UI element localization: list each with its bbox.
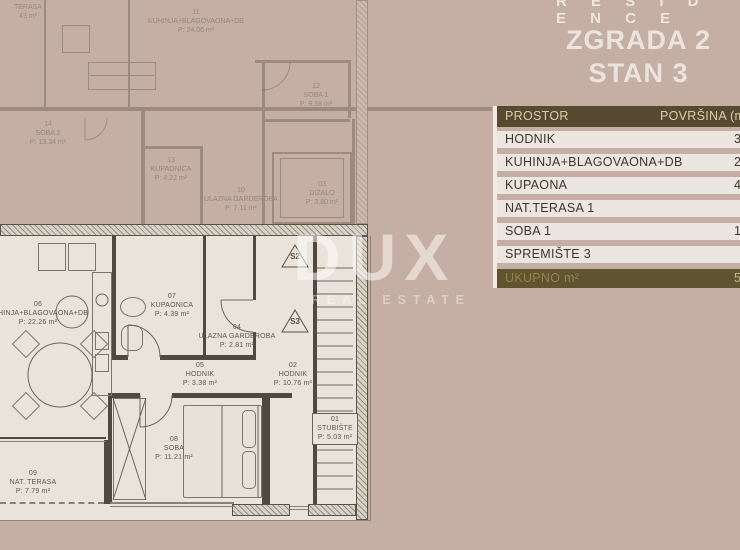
building-title: ZGRADA 2 STAN 3 <box>497 24 740 90</box>
area-table: PROSTOR POVRŠINA (m²) HODNIK 3 KUHINJA+B… <box>493 106 740 288</box>
dux-watermark-subtitle: REAL ESTATE <box>311 292 471 307</box>
row-value: 3 <box>734 131 740 148</box>
table-row: SOBA 1 1 <box>497 223 740 240</box>
col-header-prostor: PROSTOR <box>505 109 569 123</box>
room-label-kupaonica-07: 07 KUPAONICA P: 4.39 m² <box>142 292 202 319</box>
row-value: 4 <box>734 177 740 194</box>
section-marker-s3: S3 <box>280 308 310 334</box>
table-row: SPREMIŠTE 3 <box>497 246 740 263</box>
total-label: UKUPNO m² <box>505 271 579 285</box>
building-title-line1: ZGRADA 2 <box>497 24 740 57</box>
table-header: PROSTOR POVRŠINA (m²) <box>497 106 740 127</box>
row-label: SPREMIŠTE 3 <box>505 247 591 261</box>
residence-text: R E S I D E N C E <box>556 0 740 27</box>
door-arc <box>140 395 172 427</box>
screenshot-root: TERASA 43 m² 11 KUHINJA+BLAGOVAONA+DB P:… <box>0 0 740 550</box>
table-row: HODNIK 3 <box>497 131 740 148</box>
room-label-hodnik-05: 05 HODNIK P: 3.38 m² <box>172 361 228 388</box>
col-header-povrsina: POVRŠINA (m²) <box>660 106 740 127</box>
wardrobe-cross <box>113 398 146 500</box>
row-label: NAT.TERASA 1 <box>505 201 595 215</box>
room-label-terasa-09: 09 NAT. TERASA P: 7.79 m² <box>2 469 64 496</box>
table-row: KUHINJA+BLAGOVAONA+DB 22 <box>497 154 740 171</box>
table-row: NAT.TERASA 1 <box>497 200 740 217</box>
door-arc <box>128 325 160 357</box>
table-row: KUPAONA 4 <box>497 177 740 194</box>
row-label: KUHINJA+BLAGOVAONA+DB <box>505 155 683 169</box>
dining-table <box>28 343 92 407</box>
row-label: KUPAONA <box>505 178 567 192</box>
door-arc-faded <box>85 118 107 140</box>
room-label-hodnik-02: 02 HODNIK P: 10.76 m² <box>263 361 323 388</box>
room-label-soba-08: 08 SOBA P: 11.21 m² <box>146 435 202 462</box>
row-label: HODNIK <box>505 132 555 146</box>
bed-lines <box>222 405 258 498</box>
room-label-stubiste-01: 01 STUBIŠTE P: 5.03 m² <box>312 413 358 445</box>
total-value: 5 <box>734 269 740 288</box>
dux-watermark: DUX <box>293 224 456 290</box>
door-arc-faded <box>262 62 290 90</box>
row-value: 1 <box>734 223 740 240</box>
building-title-line2: STAN 3 <box>497 57 740 90</box>
table-total-row: UKUPNO m² 5 <box>497 269 740 288</box>
room-label-garderoba-04: 04 ULAZNA GARDEROBA P: 2.81 m² <box>190 323 284 350</box>
row-value: 22 <box>734 154 740 171</box>
room-label-kuhinja-06: 06 KUHINJA+BLAGOVAONA+DB P: 22.26 m² <box>0 300 98 327</box>
row-label: SOBA 1 <box>505 224 551 238</box>
section-marker-s3-label: S3 <box>280 317 310 326</box>
